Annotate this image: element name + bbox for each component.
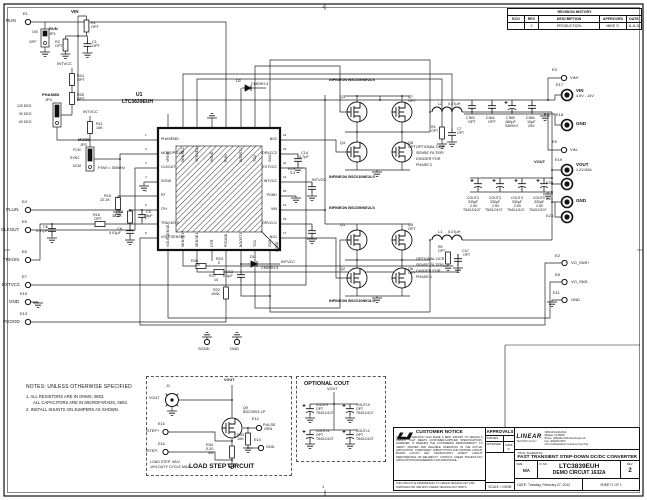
ic-pin-label: BOOST2 bbox=[240, 147, 244, 162]
ic-pin-label: CLKOUT bbox=[161, 166, 176, 170]
schematic-label: E5 bbox=[22, 220, 27, 224]
schematic-label: 0.47µH bbox=[448, 231, 460, 235]
schematic-label: L2 bbox=[438, 103, 442, 107]
schematic-label: PLLIN bbox=[6, 208, 19, 213]
ic-pin-number: 17 bbox=[283, 232, 286, 235]
schematic-label: T543-D107 bbox=[507, 209, 525, 213]
schematic-label: PHASE 1 bbox=[416, 276, 432, 280]
ic-pin-label: VIN bbox=[271, 208, 277, 212]
schematic-label: E20 bbox=[546, 181, 553, 185]
schematic-label: E13 bbox=[20, 312, 27, 316]
schematic-label: FCM bbox=[73, 149, 81, 153]
schematic-label: OPT bbox=[92, 45, 100, 49]
schematic-label: OPT bbox=[468, 121, 476, 125]
ic-pin-number: 20 bbox=[283, 190, 286, 193]
schematic-label: 3W bbox=[208, 452, 214, 456]
schematic-label: GND bbox=[230, 347, 239, 351]
schematic-label: ON bbox=[32, 31, 38, 35]
ic-pin-label: SENSE1+ bbox=[182, 231, 186, 247]
schematic-label: OPT bbox=[408, 100, 416, 104]
schematic-label: T543-D107 bbox=[316, 438, 334, 442]
schematic-label: GND bbox=[576, 199, 586, 204]
schematic-label: EXTVCC bbox=[2, 283, 20, 288]
schematic-label: VO_SNS+ bbox=[571, 261, 590, 265]
ic-pin-number: 7 bbox=[145, 218, 147, 221]
schematic-label: 1.2V/40A bbox=[576, 169, 592, 173]
frame-zone-marker: 1 bbox=[322, 5, 324, 9]
schematic-label: E18 bbox=[556, 113, 563, 117]
schematic-label: T543-D107 bbox=[316, 412, 334, 416]
schematic-label: OPT bbox=[55, 45, 63, 49]
schematic-label: 38.3K bbox=[112, 215, 122, 219]
ic-pin-label: SENSE2+ bbox=[196, 146, 200, 162]
schematic-label: VOUT bbox=[534, 160, 545, 164]
schematic-label: E2 bbox=[555, 254, 560, 258]
schematic-label: GND bbox=[9, 300, 19, 305]
ic-pin-number: 5 bbox=[145, 190, 147, 193]
ic-refdes: U1 bbox=[136, 93, 142, 98]
schematic-label: OPT bbox=[77, 79, 85, 83]
schematic-label: INTVCC bbox=[312, 179, 326, 183]
schematic-label: VOUT bbox=[576, 163, 589, 168]
schematic-label: 10K bbox=[237, 438, 244, 442]
schematic-label: E3 bbox=[552, 68, 557, 72]
schematic-label: INFINEON BSC050NE2LS bbox=[329, 207, 375, 211]
schematic-label: VIN bbox=[576, 89, 584, 94]
schematic-label: 0.47µF bbox=[36, 230, 48, 234]
schematic-label: J1 bbox=[166, 385, 170, 389]
schematic-label: E23 bbox=[546, 214, 553, 218]
schematic-label: E15 bbox=[158, 423, 165, 427]
schematic-label: GND bbox=[576, 122, 586, 127]
schematic-label: VIN bbox=[71, 10, 79, 15]
schematic-label: E8 bbox=[555, 273, 560, 277]
schematic-label: Q3 bbox=[340, 96, 345, 100]
schematic-label: OPT bbox=[94, 218, 102, 222]
schematic-label: 10 bbox=[214, 279, 218, 283]
ic-pin-label: RT bbox=[161, 194, 166, 198]
schematic-label: OPT bbox=[77, 98, 85, 102]
schematic-label: OPT bbox=[488, 121, 496, 125]
ic-pin-label: BOOST1 bbox=[240, 232, 244, 247]
schematic-label: E9 bbox=[552, 140, 557, 144]
ic-pin-label: SENSE1- bbox=[196, 232, 200, 247]
schematic-label: 100K bbox=[211, 293, 220, 297]
schematic-label: CLKOUT bbox=[1, 228, 19, 233]
schematic-label: E21 bbox=[546, 197, 553, 201]
schematic-label: 4.5V - 14V bbox=[576, 95, 594, 99]
schematic-label: 0.1µF bbox=[223, 275, 233, 279]
schematic-label: E19 bbox=[555, 158, 562, 162]
schematic-label: BSC0903-1P bbox=[243, 411, 265, 415]
schematic-label: SENSE FILTER/ bbox=[416, 264, 444, 268]
ic-pin-number: 1 bbox=[145, 134, 147, 137]
schematic-label: OPT bbox=[463, 254, 470, 258]
schematic-label: VIN- bbox=[570, 148, 578, 152]
schematic-label: SYNC bbox=[70, 157, 80, 161]
schematic-label: 22.1K bbox=[100, 199, 110, 203]
ic-pin-number: 4 bbox=[145, 176, 147, 179]
schematic-label: INFINEON BSC010NE2LS bbox=[329, 300, 375, 304]
schematic-label: OPT bbox=[438, 250, 445, 254]
schematic-label: E4 bbox=[22, 200, 27, 204]
schematic-label: Q2 bbox=[340, 268, 345, 272]
schematic-label: E16 bbox=[158, 443, 165, 447]
ic-pin-number: 24 bbox=[283, 134, 286, 137]
schematic-label: OPT bbox=[431, 130, 438, 134]
schematic-label: Q4 bbox=[340, 142, 345, 146]
schematic-label: OPTIONAL DCR bbox=[416, 146, 444, 150]
schematic-label: OPT bbox=[408, 146, 416, 150]
schematic-label: GND bbox=[571, 298, 580, 302]
schematic-label: GEN bbox=[264, 428, 272, 432]
schematic-label: T543-D107 bbox=[356, 412, 374, 416]
ic-pin-label: PGOOD bbox=[225, 234, 229, 247]
schematic-label: SENSE FILTER/ bbox=[416, 152, 444, 156]
schematic-label: DCM bbox=[73, 165, 81, 169]
schematic-label: VO_SNS- bbox=[571, 280, 589, 284]
ic-pin-label: MODE/PLLIN bbox=[161, 152, 183, 156]
schematic-label: E12 bbox=[252, 418, 259, 422]
schematic-label: INTVCC bbox=[83, 110, 98, 114]
schematic-label: T543-D107 bbox=[356, 438, 374, 442]
ic-pin-label: SW2 bbox=[269, 154, 273, 162]
schematic-label: OPTIONAL DCR bbox=[416, 258, 444, 262]
schematic-label: L1 bbox=[438, 231, 442, 235]
ic-pin-label: SW1 bbox=[269, 239, 273, 247]
schematic-label: 3.3 bbox=[290, 172, 295, 176]
schematic-label: JP4 bbox=[45, 98, 52, 102]
schematic-label: INTVCC bbox=[281, 261, 295, 265]
schematic-label: T543-D107 bbox=[463, 209, 481, 213]
schematic-label: T543-D107 bbox=[485, 209, 503, 213]
ic-pin-label: PGND bbox=[267, 194, 277, 198]
schematic-label: INFINEON BSC050NE2LS bbox=[329, 79, 375, 83]
ic-pin-label: SGND bbox=[161, 180, 171, 184]
schematic-label: VOUT bbox=[149, 397, 160, 401]
schematic-label: INTVCC bbox=[57, 62, 72, 66]
schematic-label: JP2 bbox=[80, 143, 87, 147]
schematic-label: OFF bbox=[29, 41, 37, 45]
ic-part-number: LTC3839EUH bbox=[122, 100, 153, 105]
schematic-label: 10 bbox=[196, 264, 200, 268]
schematic-label: FSW = 300kHz bbox=[98, 166, 125, 170]
schematic-label: OPT bbox=[91, 26, 99, 30]
schematic-label: VOUT bbox=[224, 379, 235, 383]
schematic-label: SGND bbox=[198, 347, 210, 351]
schematic-label: VIN+ bbox=[570, 76, 579, 80]
schematic-label: D1 bbox=[250, 256, 255, 260]
ic-pin-label: TG1 bbox=[254, 240, 258, 247]
schematic-label: RUN bbox=[6, 19, 16, 24]
schematic-label: DIVIDER FOR bbox=[416, 270, 440, 274]
ic-pin-number: 3 bbox=[145, 162, 147, 165]
ic-pin-number: 22 bbox=[283, 162, 286, 165]
schematic-label: Q1 bbox=[340, 224, 345, 228]
schematic-label: E7 bbox=[22, 275, 27, 279]
ic-pin-number: 6 bbox=[145, 204, 147, 207]
schematic-label: 120 DEG bbox=[17, 105, 31, 109]
schematic-label: INFINEON BSC010NE2LS bbox=[329, 176, 375, 180]
schematic-label: GND bbox=[266, 446, 274, 450]
schematic-label: 90 DEG bbox=[19, 113, 31, 117]
schematic-label: OPT bbox=[408, 272, 416, 276]
schematic-label: OPT bbox=[457, 132, 464, 136]
schematic-label: 4.7µF bbox=[299, 156, 309, 160]
schematic-label: 60 DEG bbox=[19, 121, 31, 125]
schematic-label: 0.01µF bbox=[109, 232, 121, 236]
schematic-label: D2 bbox=[236, 80, 241, 84]
schematic-label: JP1 bbox=[49, 32, 56, 36]
ic-pin-number: 18 bbox=[283, 218, 286, 221]
ic-pin-number: 19 bbox=[283, 204, 286, 207]
ic-pin-label: RUN bbox=[225, 154, 229, 162]
schematic-label: PGOOD bbox=[3, 320, 20, 325]
schematic-label: CMDSH-3 bbox=[261, 267, 278, 271]
schematic-label-layer: E1RUNRUNJP1ONOFFVINR1OPTR2OPTC1OPTINTVCC… bbox=[0, 0, 647, 500]
ic-pin-label: DTR bbox=[211, 240, 215, 247]
ic-pin-number: 21 bbox=[283, 176, 286, 179]
schematic-label: 10K bbox=[96, 127, 103, 131]
schematic-label: E1 bbox=[23, 12, 28, 16]
schematic-label: OPT bbox=[408, 228, 416, 232]
schematic-label: E14 bbox=[254, 439, 261, 443]
schematic-page: LOAD STEP CIRCUIT LOAD STEP: 5A/V 10% DU… bbox=[0, 0, 647, 500]
schematic-label: VOUT bbox=[327, 388, 338, 392]
schematic-label: E11 bbox=[553, 291, 560, 295]
schematic-label: 0 bbox=[218, 262, 220, 266]
schematic-label: 0.47µH bbox=[448, 103, 460, 107]
schematic-label: E6 bbox=[22, 250, 27, 254]
schematic-label: SANYO bbox=[505, 125, 518, 129]
ic-pin-number: 8 bbox=[145, 232, 147, 235]
ic-pin-label: TG2 bbox=[254, 155, 258, 162]
ic-pin-label: BG2 bbox=[270, 138, 277, 142]
schematic-label: E10 bbox=[20, 292, 27, 296]
schematic-label: TRK/SS bbox=[3, 258, 19, 263]
schematic-label: 25V bbox=[528, 125, 535, 129]
ic-pin-number: 2 bbox=[145, 148, 147, 151]
ic-pin-label: INTVCC bbox=[264, 180, 277, 184]
ic-pin-label: EXTVCC bbox=[262, 166, 277, 170]
schematic-label: T543-D107 bbox=[529, 209, 547, 213]
ic-pin-label: VOUTSENSE- bbox=[167, 224, 171, 247]
schematic-label: E17 bbox=[556, 83, 563, 87]
schematic-label: SGND bbox=[276, 242, 280, 252]
schematic-label: PHASE 2 bbox=[416, 164, 432, 168]
ic-pin-label: SGND bbox=[211, 152, 215, 162]
ic-pin-label: SENSE2- bbox=[182, 147, 186, 162]
schematic-label: ISTEP- bbox=[146, 450, 158, 454]
ic-pin-number: 23 bbox=[283, 148, 286, 151]
frame-zone-marker: 1 bbox=[322, 485, 324, 489]
schematic-label: ISTEP+ bbox=[146, 430, 159, 434]
schematic-label: DIVIDER FOR bbox=[416, 158, 440, 162]
ic-pin-label: ITH bbox=[161, 208, 167, 212]
ic-pin-label: VRNG bbox=[167, 152, 171, 162]
schematic-label: CMDSH-3 bbox=[251, 83, 268, 87]
ic-pin-label: DRVCC1 bbox=[262, 222, 277, 226]
ic-pin-label: PHASEMD bbox=[161, 138, 179, 142]
